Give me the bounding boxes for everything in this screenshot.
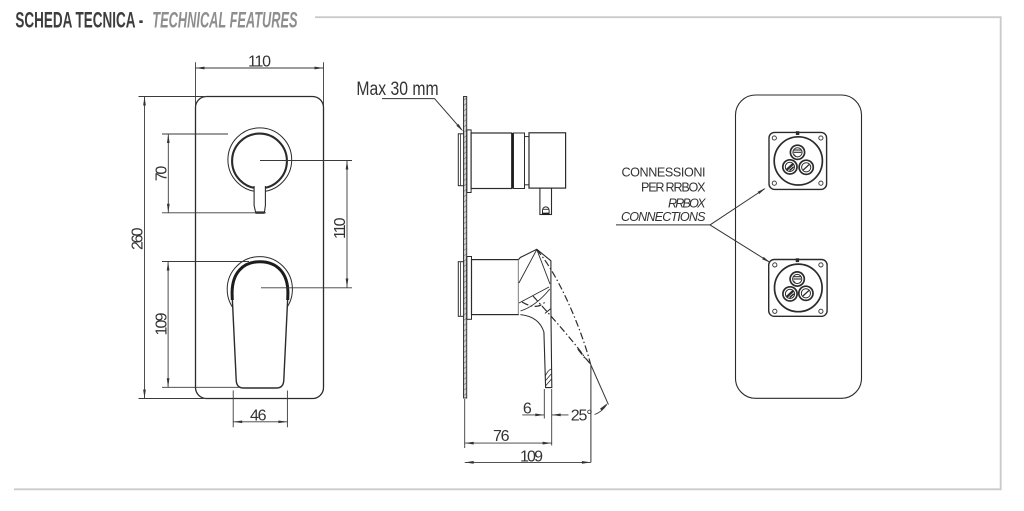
svg-text:Max 30 mm: Max 30 mm: [356, 79, 438, 100]
svg-text:109: 109: [153, 312, 170, 335]
svg-text:260: 260: [130, 227, 147, 250]
svg-text:CONNECTIONS: CONNECTIONS: [621, 210, 706, 224]
svg-text:110: 110: [248, 53, 271, 70]
svg-text:SCHEDA TECNICA -: SCHEDA TECNICA -: [15, 8, 143, 33]
svg-text:PER RRBOX: PER RRBOX: [641, 181, 706, 195]
svg-text:TECHNICAL FEATURES: TECHNICAL FEATURES: [152, 8, 297, 33]
svg-text:6: 6: [523, 400, 532, 417]
svg-text:70: 70: [154, 166, 171, 182]
svg-text:25°: 25°: [571, 408, 593, 425]
svg-text:RRBOX: RRBOX: [668, 196, 706, 210]
svg-text:110: 110: [332, 217, 349, 239]
svg-text:46: 46: [250, 407, 267, 424]
svg-text:109: 109: [520, 448, 543, 465]
svg-text:CONNESSIONI: CONNESSIONI: [622, 165, 706, 179]
svg-text:76: 76: [493, 428, 510, 445]
